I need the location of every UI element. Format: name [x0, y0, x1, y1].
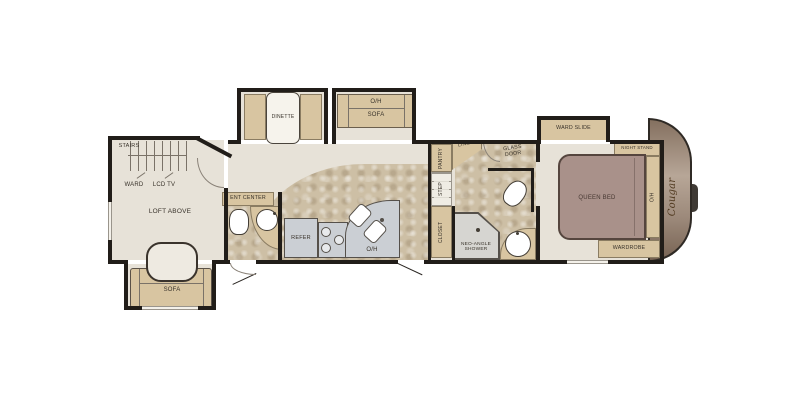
- pantry-label: PANTRY: [434, 145, 449, 171]
- wall-bath-northeast: [536, 140, 540, 162]
- stove-burner-2: [321, 243, 331, 253]
- bed-pillow-line: [634, 158, 635, 236]
- rear-sofa-arm-left: [139, 269, 140, 307]
- ward-slide-label: WARD SLIDE: [541, 124, 606, 134]
- wall-sofa-slide-left: [332, 88, 336, 144]
- loft-above-label: LOFT ABOVE: [146, 203, 194, 221]
- wall-right: [660, 140, 664, 264]
- wall-bottom-2: [424, 260, 567, 264]
- step-label: STEP: [434, 174, 449, 204]
- shower-head: [476, 228, 480, 232]
- stairs-edge: [186, 141, 187, 171]
- dinette-bench-left: [244, 94, 266, 140]
- wall-rear-slide-right: [212, 260, 216, 310]
- dinette-label: DINETTE: [267, 113, 299, 122]
- refer-label: REFER: [285, 234, 317, 243]
- rear-sofa-seat-line: [140, 283, 203, 284]
- wall-rear-slide-left: [124, 260, 128, 310]
- half-bath-toilet: [229, 209, 249, 235]
- kitchen-oh-label: O/H: [358, 246, 386, 255]
- wall-dinette-slide-left: [237, 88, 241, 144]
- rear-table: [146, 242, 198, 282]
- wall-bottom-3: [608, 260, 664, 264]
- rear-sofa-arm-right: [203, 269, 204, 307]
- floorplan-canvas: Cougar STAIRS WARD LCD TV LOFT ABOVE SOF…: [0, 0, 800, 400]
- wall-sofa-slide-right: [412, 88, 416, 144]
- wall-ward-slide-right: [606, 116, 610, 142]
- rear-sofa-label: SOFA: [158, 286, 186, 295]
- stairs-label: STAIRS: [114, 143, 144, 151]
- wall-dinette-slide-right: [324, 88, 328, 144]
- dinette-bench-right: [300, 94, 322, 140]
- window-rear-slide: [142, 306, 198, 310]
- stairs-treads-lower: [130, 156, 186, 171]
- wall-main-top-2: [416, 140, 541, 144]
- ward-label: WARD: [121, 181, 147, 189]
- ent-center-label: ENT CENTER: [223, 194, 273, 204]
- wall-rear-top: [108, 136, 200, 140]
- wall-main-top-1: [228, 140, 241, 144]
- wall-toilet-alcove-v: [531, 168, 534, 212]
- window-bottom-bedroom: [567, 260, 608, 264]
- wall-half-bath-right: [278, 192, 282, 260]
- brand-logo: Cougar: [662, 179, 684, 215]
- bedroom-oh-label: O/H: [648, 180, 658, 214]
- wall-dinette-slide-top: [237, 88, 328, 92]
- stove-burner-3: [334, 235, 344, 245]
- wall-kitchen-east: [428, 140, 431, 260]
- night-stand-label: NIGHT STAND: [614, 144, 660, 153]
- slide-sofa-label: SOFA: [362, 111, 390, 120]
- slide-sofa-arm-left: [348, 95, 349, 127]
- closet-label: CLOSET: [434, 212, 449, 252]
- wall-sofa-slide-top: [332, 88, 416, 92]
- stairs-rail: [128, 155, 186, 156]
- wall-ward-slide-top: [537, 116, 610, 120]
- window-rear-left: [108, 202, 112, 240]
- wall-bedroom-left: [536, 206, 540, 260]
- kitchen-faucet: [380, 218, 384, 222]
- wardrobe-label: WARDROBE: [598, 244, 660, 254]
- stove-burner-1: [321, 227, 331, 237]
- wall-rear-interior: [224, 188, 228, 260]
- wall-closet-east: [452, 206, 455, 260]
- wall-bottom-1: [256, 260, 398, 264]
- half-bath-faucet: [273, 212, 276, 215]
- shower-label: NEO-ANGLE SHOWER: [454, 238, 498, 256]
- wall-main-top-3: [610, 140, 664, 144]
- entry-door-main-leaf: [398, 263, 423, 275]
- entry-door-bath-swing: [230, 263, 256, 275]
- wall-rear-left: [108, 136, 112, 264]
- queen-bed-label: QUEEN BED: [562, 193, 632, 203]
- wall-ward-slide-left: [537, 116, 541, 142]
- slide-sofa-oh-label: O/H: [362, 98, 390, 107]
- lcd-tv-label: LCD TV: [149, 181, 179, 189]
- slide-sofa-divider: [348, 108, 404, 109]
- slide-sofa-arm-right: [404, 95, 405, 127]
- wall-toilet-alcove-h: [488, 168, 534, 171]
- bath-faucet: [516, 232, 519, 235]
